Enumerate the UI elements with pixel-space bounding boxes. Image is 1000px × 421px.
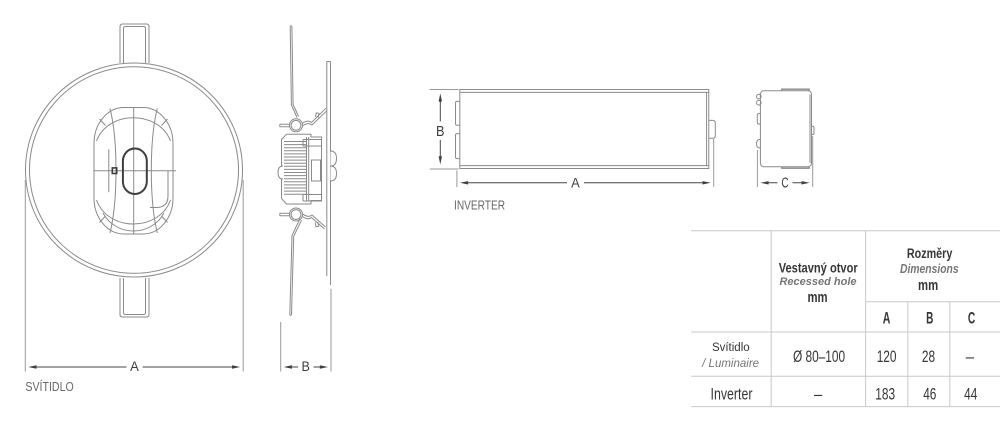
svg-text:A: A xyxy=(130,359,139,375)
svg-text:A: A xyxy=(883,308,891,327)
svg-text:C: C xyxy=(968,309,975,327)
svg-text:120: 120 xyxy=(877,348,897,366)
svg-text:Dimensions: Dimensions xyxy=(900,262,959,276)
svg-text:B: B xyxy=(302,359,311,375)
svg-text:44: 44 xyxy=(964,386,977,404)
svg-text:INVERTER: INVERTER xyxy=(454,198,505,212)
svg-text:A: A xyxy=(571,175,580,191)
svg-text:28: 28 xyxy=(922,348,935,366)
svg-text:B: B xyxy=(436,122,445,139)
svg-text:Rozměry: Rozměry xyxy=(907,246,953,262)
svg-text:Svítidlo: Svítidlo xyxy=(712,342,750,354)
svg-text:183: 183 xyxy=(875,386,895,404)
svg-text:–: – xyxy=(814,386,823,404)
svg-text:–: – xyxy=(966,348,975,366)
svg-text:46: 46 xyxy=(923,386,936,404)
svg-text:mm: mm xyxy=(807,289,827,306)
svg-text:B: B xyxy=(926,309,933,327)
svg-text:C: C xyxy=(781,174,788,192)
svg-text:Recessed hole: Recessed hole xyxy=(779,276,856,288)
svg-text:mm: mm xyxy=(918,277,938,294)
svg-text:Ø 80–100: Ø 80–100 xyxy=(793,348,845,366)
svg-text:Vestavný otvor: Vestavný otvor xyxy=(779,260,858,276)
svg-text:/ Luminaire: / Luminaire xyxy=(701,358,759,370)
svg-text:Inverter: Inverter xyxy=(711,386,753,404)
svg-text:SVÍTIDLO: SVÍTIDLO xyxy=(25,378,73,394)
